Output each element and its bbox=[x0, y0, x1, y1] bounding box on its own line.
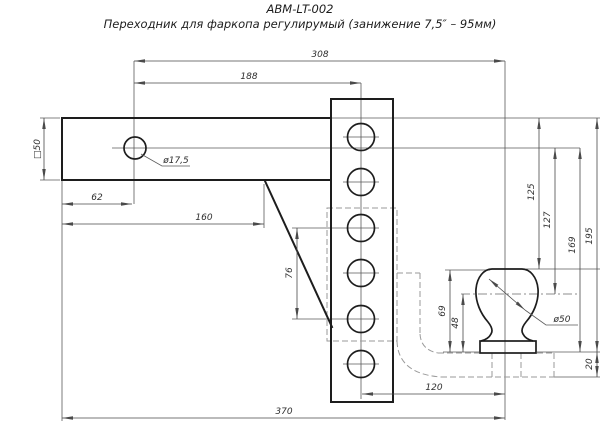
dimension-62: 62 bbox=[62, 193, 132, 204]
dim-308-label: 308 bbox=[311, 50, 328, 60]
dim-127-label: 127 bbox=[543, 211, 553, 228]
dimension-69: 69 bbox=[438, 270, 450, 352]
dimension-308: 308 bbox=[134, 50, 505, 61]
dimension-square50: □50 bbox=[33, 118, 44, 180]
hitch-tube bbox=[62, 118, 331, 180]
adjustment-post bbox=[265, 99, 393, 402]
drawing-sheet: ABM-LT-002 Переходник для фаркопа регули… bbox=[0, 0, 600, 424]
dimension-76: 76 bbox=[285, 228, 297, 319]
dimension-ball-diameter: ø50 bbox=[489, 279, 578, 325]
post-outline bbox=[331, 99, 393, 402]
hitch-ball bbox=[476, 269, 538, 341]
dim-69-label: 69 bbox=[438, 305, 448, 317]
dim-195-label: 195 bbox=[585, 227, 595, 244]
dimension-370: 370 bbox=[62, 407, 505, 418]
tube-outline bbox=[62, 118, 331, 180]
hidden-bracket-outer-corner bbox=[397, 341, 441, 377]
extension-lines bbox=[40, 61, 600, 421]
dimension-20: 20 bbox=[585, 352, 597, 377]
gusset-plate bbox=[265, 181, 332, 327]
dimension-188: 188 bbox=[134, 72, 361, 83]
drawing-model: ABM-LT-002 bbox=[266, 2, 334, 16]
ball-base-plate bbox=[480, 341, 536, 353]
drawing-description: Переходник для фаркопа регулирумый (зани… bbox=[104, 17, 497, 31]
dim-188-label: 188 bbox=[240, 72, 257, 82]
dim-160-label: 160 bbox=[195, 213, 212, 223]
dim-pin-hole-label: ø17,5 bbox=[162, 156, 189, 166]
dim-square50-label: □50 bbox=[33, 139, 43, 159]
dim-76-label: 76 bbox=[285, 267, 295, 279]
dimension-127: 127 bbox=[543, 148, 555, 294]
dimension-125: 125 bbox=[527, 118, 539, 269]
technical-drawing: ABM-LT-002 Переходник для фаркопа регули… bbox=[0, 0, 600, 424]
dim-62-label: 62 bbox=[91, 193, 103, 203]
dim-20-label: 20 bbox=[585, 358, 595, 370]
dim-370-label: 370 bbox=[275, 407, 292, 417]
dimension-195: 195 bbox=[585, 118, 597, 352]
hitch-ball-assembly bbox=[476, 269, 538, 353]
dimension-48: 48 bbox=[451, 294, 463, 352]
dim-169-label: 169 bbox=[568, 236, 578, 253]
title-block: ABM-LT-002 Переходник для фаркопа регули… bbox=[104, 2, 497, 31]
dim-125-label: 125 bbox=[527, 183, 537, 200]
dimension-120: 120 bbox=[362, 383, 505, 394]
dim-120-label: 120 bbox=[425, 383, 442, 393]
dim-48-label: 48 bbox=[451, 317, 461, 329]
dimension-pin-hole: ø17,5 bbox=[141, 154, 190, 166]
dimension-160: 160 bbox=[62, 213, 264, 224]
dim-ball-diameter-label: ø50 bbox=[553, 315, 571, 325]
